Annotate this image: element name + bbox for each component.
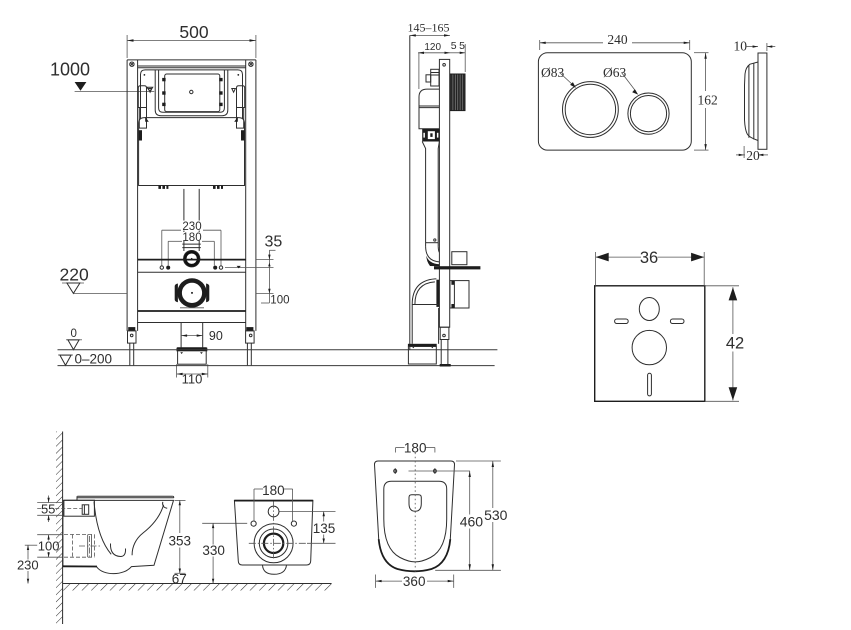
svg-text:330: 330 <box>202 543 225 558</box>
svg-text:Ø83: Ø83 <box>541 65 564 80</box>
svg-text:20: 20 <box>746 148 760 163</box>
svg-text:1000: 1000 <box>50 60 90 80</box>
svg-text:240: 240 <box>607 32 628 47</box>
svg-text:10: 10 <box>734 39 748 54</box>
svg-text:530: 530 <box>484 507 508 523</box>
svg-text:55: 55 <box>41 502 55 517</box>
svg-text:0: 0 <box>71 328 77 340</box>
svg-text:36: 36 <box>640 249 658 267</box>
svg-text:42: 42 <box>726 334 744 352</box>
svg-text:100: 100 <box>270 295 289 307</box>
svg-text:360: 360 <box>403 574 426 589</box>
svg-text:180: 180 <box>182 232 201 244</box>
svg-text:145–165: 145–165 <box>408 21 450 35</box>
svg-text:353: 353 <box>169 534 192 549</box>
svg-text:35: 35 <box>265 234 283 251</box>
svg-text:Ø63: Ø63 <box>603 65 626 80</box>
svg-text:500: 500 <box>179 22 208 42</box>
svg-text:0–200: 0–200 <box>75 352 113 367</box>
svg-text:67: 67 <box>172 571 187 586</box>
svg-text:220: 220 <box>60 264 89 284</box>
svg-text:230: 230 <box>17 558 39 573</box>
svg-text:90: 90 <box>209 329 223 343</box>
svg-text:180: 180 <box>404 440 427 455</box>
svg-text:120: 120 <box>424 42 441 53</box>
svg-text:135: 135 <box>313 521 336 536</box>
svg-text:100: 100 <box>38 539 60 554</box>
svg-text:460: 460 <box>460 513 484 529</box>
svg-text:162: 162 <box>698 93 718 108</box>
svg-text:180: 180 <box>262 483 285 498</box>
svg-text:110: 110 <box>182 372 203 387</box>
